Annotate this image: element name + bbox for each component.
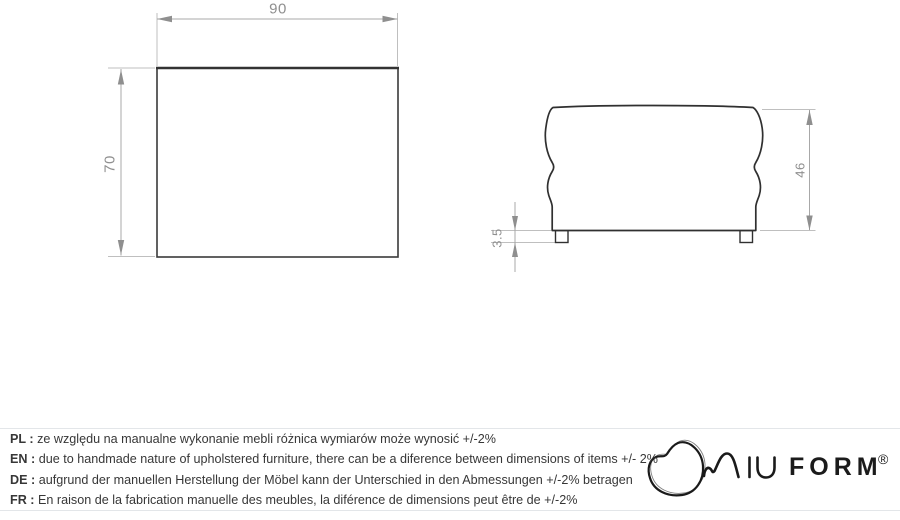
note-lang-label: DE <box>10 473 28 487</box>
note-separator: : <box>28 452 39 466</box>
note-text: aufgrund der manuellen Herstellung der M… <box>39 473 633 487</box>
registered-trademark-symbol: ® <box>878 451 888 467</box>
note-text: due to handmade nature of upholstered fu… <box>39 452 658 466</box>
note-fr: FR : En raison de la fabrication manuell… <box>10 490 658 510</box>
note-text: En raison de la fabrication manuelle des… <box>38 493 577 507</box>
dimension-label-leg-height-3-5: 3.5 <box>490 228 505 248</box>
product-dimensions-sheet: 90 70 46 3.5 PL : ze względu na manualne… <box>0 0 900 520</box>
note-de: DE : aufgrund der manuellen Herstellung … <box>10 470 658 490</box>
note-pl: PL : ze względu na manualne wykonanie me… <box>10 429 658 449</box>
top-view <box>108 13 399 257</box>
dimension-label-depth-70: 70 <box>102 155 119 173</box>
miuform-wordmark-bold: FORM <box>789 455 883 479</box>
note-separator: : <box>27 493 38 507</box>
dimension-label-width-90: 90 <box>269 1 287 18</box>
note-lang-label: FR <box>10 493 27 507</box>
side-view <box>491 105 816 272</box>
note-lang-label: EN <box>10 452 28 466</box>
note-lang-label: PL <box>10 432 26 446</box>
miu-stylized-letters <box>704 454 775 478</box>
disclaimer-notes: PL : ze względu na manualne wykonanie me… <box>10 429 658 510</box>
note-separator: : <box>28 473 39 487</box>
note-separator: : <box>26 432 37 446</box>
note-text: ze względu na manualne wykonanie mebli r… <box>37 432 496 446</box>
miuform-logo-graphics <box>649 440 775 495</box>
note-en: EN : due to handmade nature of upholster… <box>10 449 658 469</box>
top-view-outline <box>157 68 398 257</box>
dimension-label-height-46: 46 <box>793 162 808 177</box>
ottoman-legs <box>556 231 753 243</box>
ottoman-body-outline <box>545 105 762 230</box>
